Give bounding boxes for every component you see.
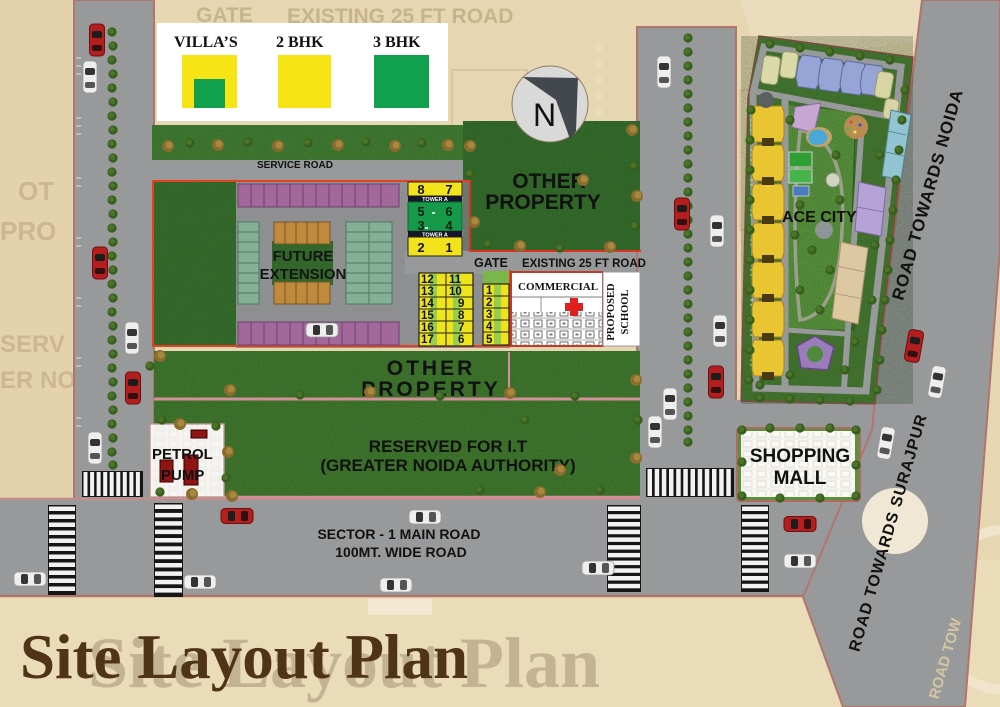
svg-text:4: 4 — [445, 218, 453, 233]
svg-text:6: 6 — [458, 334, 464, 346]
svg-text:PROPERTY: PROPERTY — [485, 191, 601, 214]
svg-text:EXISTING 25 FT ROAD: EXISTING 25 FT ROAD — [522, 258, 646, 270]
svg-text:ACE CITY: ACE CITY — [782, 209, 857, 226]
svg-text:SCHOOL: SCHOOL — [620, 290, 631, 335]
svg-text:2: 2 — [417, 240, 424, 255]
svg-text:TOWER A: TOWER A — [422, 233, 448, 239]
svg-text:PRO: PRO — [0, 216, 56, 246]
svg-text:1: 1 — [445, 240, 452, 255]
svg-text:PROPOSED: PROPOSED — [606, 283, 617, 341]
svg-text:3: 3 — [417, 218, 424, 233]
svg-text:6: 6 — [445, 204, 452, 219]
svg-text:14: 14 — [421, 298, 434, 310]
svg-text:MALL: MALL — [774, 468, 827, 489]
svg-text:100MT. WIDE ROAD: 100MT. WIDE ROAD — [335, 544, 466, 560]
svg-text:5: 5 — [486, 334, 493, 346]
svg-text:OTHER: OTHER — [387, 357, 476, 380]
svg-text:11: 11 — [449, 274, 462, 286]
svg-text:4: 4 — [486, 321, 493, 333]
svg-text:3: 3 — [486, 309, 492, 321]
svg-text:8: 8 — [417, 182, 424, 197]
svg-text:OT: OT — [18, 176, 54, 206]
svg-text:SERVICE ROAD: SERVICE ROAD — [257, 160, 333, 171]
svg-text:RESERVED FOR I.T: RESERVED FOR I.T — [369, 437, 528, 456]
svg-text:8: 8 — [458, 310, 465, 322]
svg-text:SECTOR - 1 MAIN ROAD: SECTOR - 1 MAIN ROAD — [317, 526, 480, 542]
svg-text:13: 13 — [421, 286, 434, 298]
svg-text:12: 12 — [421, 274, 434, 286]
svg-text:2: 2 — [486, 297, 492, 309]
svg-text:9: 9 — [458, 298, 464, 310]
svg-text:7: 7 — [445, 182, 452, 197]
svg-text:3 BHK: 3 BHK — [373, 34, 421, 51]
svg-text:Site Layout Plan: Site Layout Plan — [20, 622, 468, 692]
svg-text:PETROL: PETROL — [152, 446, 213, 463]
svg-text:EXTENSION: EXTENSION — [260, 266, 347, 283]
svg-text:SERV: SERV — [0, 331, 65, 358]
svg-text:7: 7 — [458, 322, 464, 334]
svg-text:PROPERTY: PROPERTY — [361, 378, 501, 401]
svg-text:16: 16 — [421, 322, 434, 334]
svg-text:PUMP: PUMP — [161, 467, 204, 484]
svg-text:(GREATER NOIDA AUTHORITY): (GREATER NOIDA AUTHORITY) — [320, 456, 575, 475]
svg-text:TOWER A: TOWER A — [422, 197, 448, 203]
svg-text:5: 5 — [417, 204, 424, 219]
svg-text:COMMERCIAL: COMMERCIAL — [518, 281, 598, 293]
svg-text:SHOPPING: SHOPPING — [750, 446, 850, 467]
svg-text:10: 10 — [449, 286, 462, 298]
svg-text:ER NO: ER NO — [0, 367, 76, 394]
svg-text:GATE: GATE — [474, 256, 508, 270]
svg-text:OTHER: OTHER — [512, 170, 586, 193]
svg-text:15: 15 — [421, 310, 434, 322]
svg-text:FUTURE: FUTURE — [273, 248, 334, 265]
svg-text:1: 1 — [486, 285, 493, 297]
svg-text:N: N — [533, 97, 556, 133]
svg-text:VILLA’S: VILLA’S — [174, 34, 238, 51]
svg-text:17: 17 — [421, 334, 434, 346]
svg-text:2 BHK: 2 BHK — [276, 34, 324, 51]
